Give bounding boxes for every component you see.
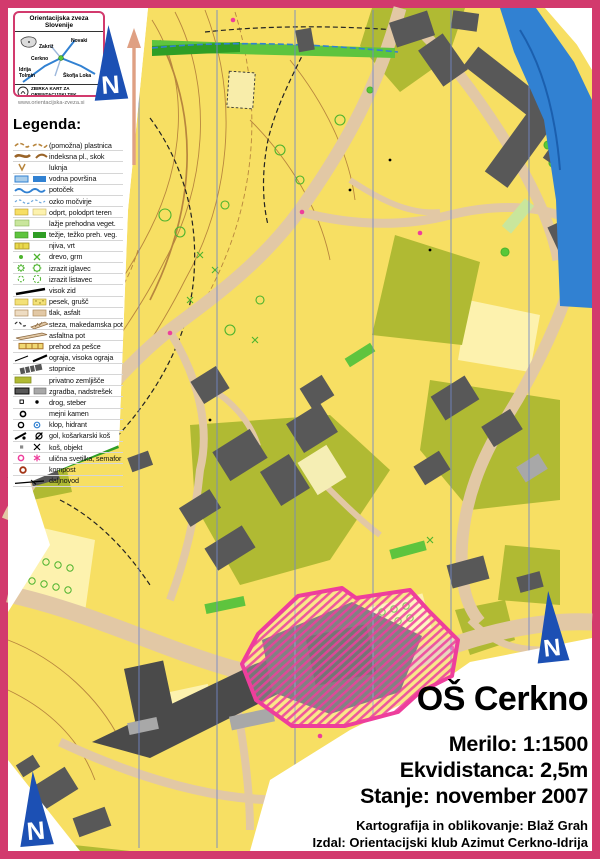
north-arrow: N	[528, 588, 572, 673]
pole-icon	[13, 397, 49, 407]
hole-icon	[13, 162, 49, 172]
veg-hard-icon	[13, 230, 49, 240]
legend-item-label: luknja	[49, 163, 67, 172]
north-arrow: N	[10, 768, 58, 857]
map-equidistance: Ekvidistanca: 2,5m	[248, 758, 588, 784]
north-letter: N	[26, 817, 47, 846]
legend-item-label: privatno zemljišče	[49, 376, 104, 385]
lamp-semaphore-icon	[13, 453, 49, 463]
legend-item-label: drevo, grm	[49, 252, 82, 261]
legend-item-label: težje, težko preh. veg.	[49, 230, 117, 239]
legend-item-label: drog, steber	[49, 398, 86, 407]
deciduous-icon	[13, 274, 49, 284]
legend-item-label: njiva, vrt	[49, 241, 75, 250]
legend-item: izrazit iglavec	[13, 263, 123, 274]
north-arrow: N	[88, 22, 130, 111]
legend-item-label: prehod za pešce	[49, 342, 101, 351]
compost-icon	[13, 465, 49, 475]
wall-icon	[13, 286, 49, 296]
water-area-icon	[13, 174, 49, 184]
legend-item-label: kompost	[49, 465, 75, 474]
bin-object-icon	[13, 442, 49, 452]
legend-item: drevo, grm	[13, 252, 123, 263]
veg-easy-icon	[13, 218, 49, 228]
legend-item: potoček	[13, 185, 123, 196]
legend-item: pesek, grušč	[13, 297, 123, 308]
legend-item: izrazit listavec	[13, 274, 123, 285]
legend-item: težje, težko preh. veg.	[13, 230, 123, 241]
legend-item-label: ozko močvirje	[49, 197, 92, 206]
fence-icon	[13, 353, 49, 363]
minimap-label-tolmin: Tolmin	[19, 73, 35, 79]
legend-item-label: zgradba, nadstrešek	[49, 387, 112, 396]
legend-item-label: steza, makedamska pot	[49, 320, 123, 329]
credit-cartography: Kartografija in oblikovanje: Blaž Grah	[248, 818, 588, 835]
boundary-stone-icon	[13, 409, 49, 419]
legend-item: drog, steber	[13, 397, 123, 408]
legend-item-label: ulična svetilka, semafor	[49, 454, 121, 463]
legend-item: stopnice	[13, 364, 123, 375]
legend-item: vodna površina	[13, 174, 123, 185]
sand-area	[227, 71, 255, 109]
building-icon	[13, 386, 49, 396]
legend-item-label: odprt, polodprt teren	[49, 208, 112, 217]
legend-item-label: visok zid	[49, 286, 76, 295]
legend-items: (pomožna) plastnicaindeksna pl., skokluk…	[13, 140, 123, 487]
legend-item: daljnovod	[13, 476, 123, 487]
legend-item-label: mejni kamen	[49, 409, 89, 418]
legend-item: ulična svetilka, semafor	[13, 453, 123, 464]
legend-item-label: lažje prehodna veget.	[49, 219, 116, 228]
ozs-url: www.orientacijska-zveza.si	[18, 100, 85, 106]
legend-item: ograja, visoka ograja	[13, 353, 123, 364]
contour-aux-icon	[13, 140, 49, 150]
map-sheet: Orientacijska zveza Slovenije Novaki Zak…	[0, 0, 600, 859]
private-land-icon	[13, 375, 49, 385]
legend-item-label: koš, objekt	[49, 443, 82, 452]
legend-item-label: pesek, grušč	[49, 297, 89, 306]
open-terrain-icon	[13, 207, 49, 217]
legend-item-label: daljnovod	[49, 476, 79, 485]
legend-item-label: izrazit listavec	[49, 275, 92, 284]
legend: Legenda: (pomožna) plastnicaindeksna pl.…	[13, 116, 123, 487]
legend-item-label: tlak, asfalt	[49, 308, 80, 317]
bench-hydrant-icon	[13, 420, 49, 430]
legend-item-label: indeksna pl., skok	[49, 152, 104, 161]
legend-item: zgradba, nadstrešek	[13, 386, 123, 397]
stairs-icon	[13, 364, 49, 374]
legend-item-label: ograja, visoka ograja	[49, 353, 113, 362]
legend-item: prehod za pešce	[13, 341, 123, 352]
field-icon	[13, 241, 49, 251]
legend-title: Legenda:	[13, 116, 123, 133]
legend-item: asfaltna pot	[13, 330, 123, 341]
legend-item: tlak, asfalt	[13, 308, 123, 319]
map-scale: Merilo: 1:1500	[248, 732, 588, 758]
sand-icon	[13, 297, 49, 307]
north-letter: N	[100, 71, 120, 100]
crossing-icon	[13, 341, 49, 351]
asphalt-path-icon	[13, 330, 49, 340]
path-gravel-icon	[13, 319, 49, 329]
legend-item-label: klop, hidrant	[49, 420, 87, 429]
minimap-label-zakriz: Zakriž	[39, 44, 54, 50]
legend-item: kompost	[13, 464, 123, 475]
legend-item-label: stopnice	[49, 364, 75, 373]
legend-item: (pomožna) plastnica	[13, 140, 123, 151]
legend-item-label: (pomožna) plastnica	[49, 141, 112, 150]
goal-basket-icon	[13, 431, 49, 441]
tree-bush-icon	[13, 252, 49, 262]
north-letter: N	[542, 634, 562, 663]
map-status: Stanje: november 2007	[248, 784, 588, 810]
legend-item: lažje prehodna veget.	[13, 218, 123, 229]
legend-item-label: izrazit iglavec	[49, 264, 91, 273]
legend-item: mejni kamen	[13, 409, 123, 420]
legend-item: visok zid	[13, 285, 123, 296]
ozs-emblem-icon	[17, 86, 29, 97]
legend-item: klop, hidrant	[13, 420, 123, 431]
legend-item-label: vodna površina	[49, 174, 96, 183]
legend-item-label: gol, košarkarski koš	[49, 431, 110, 440]
legend-item: njiva, vrt	[13, 241, 123, 252]
legend-item: koš, objekt	[13, 442, 123, 453]
map-title: OŠ Cerkno	[248, 680, 588, 719]
legend-item: odprt, polodprt teren	[13, 207, 123, 218]
minimap-label-cerkno: Cerkno	[31, 56, 48, 62]
conifer-icon	[13, 263, 49, 273]
stream-icon	[13, 185, 49, 195]
marsh-icon	[13, 196, 49, 206]
legend-item: ozko močvirje	[13, 196, 123, 207]
credit-publisher: Izdal: Orientacijski klub Azimut Cerkno-…	[248, 835, 588, 852]
legend-item: indeksna pl., skok	[13, 151, 123, 162]
ozs-footer-line2: ORIENTACIJSKI TEK	[31, 92, 77, 97]
title-block: OŠ Cerkno Merilo: 1:1500 Ekvidistanca: 2…	[248, 680, 588, 852]
legend-item: privatno zemljišče	[13, 375, 123, 386]
contour-index-icon	[13, 151, 49, 161]
legend-item: gol, košarkarski koš	[13, 431, 123, 442]
legend-item-label: potoček	[49, 185, 73, 194]
legend-item: luknja	[13, 162, 123, 173]
powerline-icon	[13, 476, 49, 486]
legend-item-label: asfaltna pot	[49, 331, 85, 340]
paved-icon	[13, 308, 49, 318]
legend-item: steza, makedamska pot	[13, 319, 123, 330]
